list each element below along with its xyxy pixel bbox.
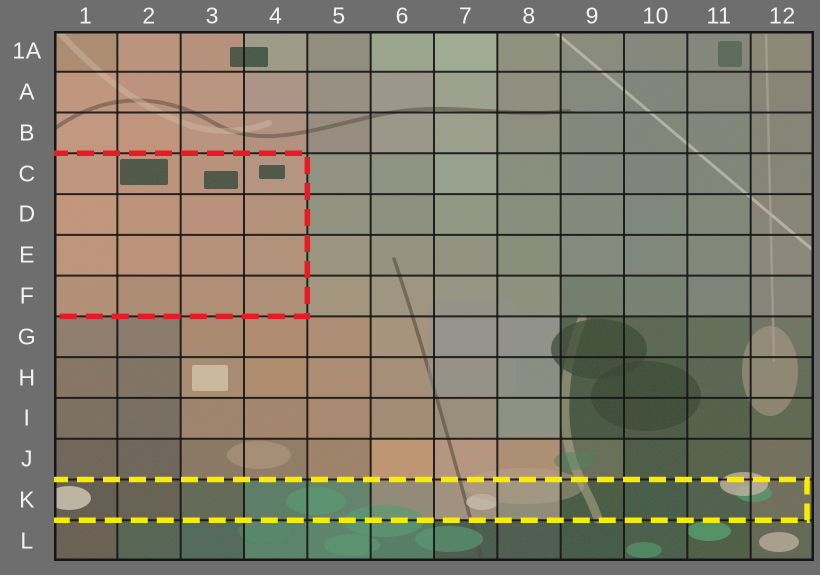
row-label-J: J	[21, 446, 33, 473]
row-label-C: C	[18, 160, 35, 187]
row-label-1A: 1A	[12, 38, 41, 65]
row-label-K: K	[19, 486, 35, 513]
satellite-map-svg	[54, 31, 814, 561]
satellite-map[interactable]	[54, 31, 814, 561]
column-label-11: 11	[707, 2, 732, 29]
row-label-D: D	[18, 201, 35, 228]
column-label-5: 5	[332, 2, 345, 29]
column-label-1: 1	[79, 2, 92, 29]
column-label-4: 4	[269, 2, 282, 29]
column-label-3: 3	[206, 2, 219, 29]
column-label-12: 12	[769, 2, 796, 29]
row-label-I: I	[24, 405, 31, 432]
column-label-2: 2	[142, 2, 155, 29]
row-label-H: H	[18, 364, 35, 391]
column-label-7: 7	[459, 2, 472, 29]
row-label-G: G	[18, 323, 36, 350]
gridded-satellite-map: 123456789101112 1AABCDEFGHIJKL	[0, 0, 820, 575]
column-label-8: 8	[522, 2, 535, 29]
row-label-L: L	[20, 527, 33, 554]
column-label-9: 9	[586, 2, 599, 29]
row-label-B: B	[19, 119, 35, 146]
row-label-E: E	[19, 242, 35, 269]
column-label-6: 6	[396, 2, 409, 29]
row-label-A: A	[19, 79, 35, 106]
column-label-10: 10	[642, 2, 669, 29]
row-label-F: F	[20, 283, 35, 310]
